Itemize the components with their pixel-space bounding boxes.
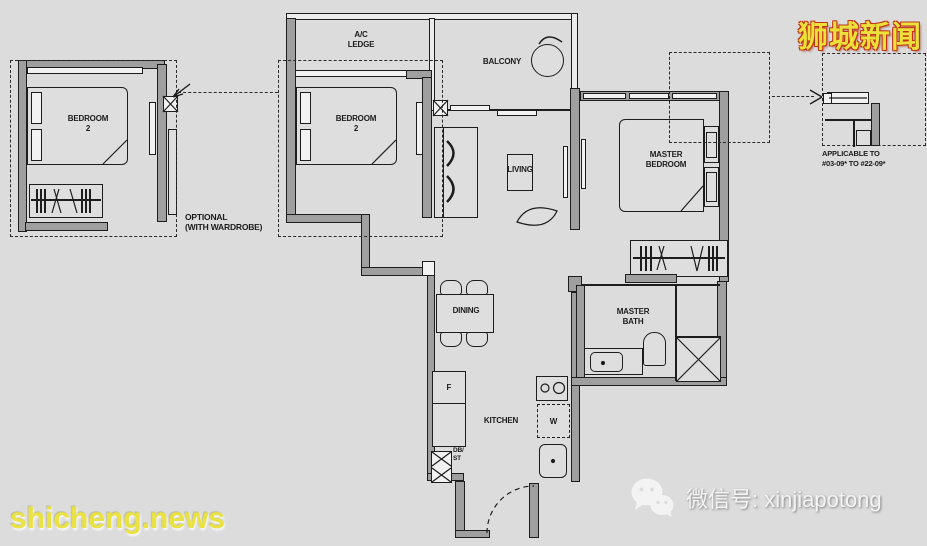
window-panel [581,139,586,189]
wechat-id-text: 微信号: xinjiapotong [686,482,882,514]
room-label-dining: DINING [436,306,496,316]
room-label-master-bath: MASTER BATH [597,307,669,327]
kitchen-sink [539,444,567,478]
dashed-connector [772,96,814,98]
room-label-bedroom2-optional: BEDROOM 2 [53,114,123,134]
detail-window [827,92,869,104]
floor-plan-page: A/C LEDGE BALCONY BEDROOM 2 BEDROOM 2 MA… [0,0,927,546]
detail-line-v [853,119,855,147]
dining-chair [440,280,462,295]
optional-note: OPTIONAL (WITH WARDROBE) [185,212,295,232]
shower [676,337,721,382]
floor-plan [0,0,927,546]
dashed-connector [178,92,278,94]
door-pivot-square [422,261,435,276]
watermark-site-url: shicheng.news [10,502,225,536]
toilet [643,332,666,366]
room-label-master-bedroom: MASTER BEDROOM [630,150,702,170]
detail-rect [856,130,871,146]
wall-balcony-right [571,13,578,92]
dining-chair [466,332,488,347]
cabinet [432,403,466,447]
dining-chair [440,332,462,347]
washer-label: W [537,404,570,438]
room-label-kitchen: KITCHEN [466,416,536,426]
wardrobe [630,240,728,277]
sofa-back-line [443,128,444,217]
watermark-wechat: 微信号: xinjiapotong [630,477,882,519]
side-table-inner [706,172,717,202]
stove [536,376,568,401]
room-label-bedroom2: BEDROOM 2 [321,114,391,134]
dashed-box-bedroom2 [278,60,443,237]
detail-wall [871,103,880,146]
room-label-living: LIVING [490,165,550,175]
window-panel [563,146,568,198]
fridge-label: F [432,371,466,404]
dashed-box-master [669,52,770,143]
wall-living-divider [570,88,580,230]
slider-panel [450,105,490,111]
slider-panel [497,110,537,116]
line-bath-top [581,284,720,286]
wall-entry-bottom [455,530,490,538]
dbst-box [431,451,452,483]
detail-line-h [825,119,871,121]
room-label-ac-ledge: A/C LEDGE [321,30,401,50]
window-master [583,93,626,99]
dashed-box-optional [10,60,177,237]
wardrobe-bar [625,274,677,283]
vanity-sink [590,352,623,372]
applicable-note: APPLICABLE TO #03-09* TO #22-09* [822,149,927,169]
wechat-icon [630,477,676,519]
watermark-brand-cn: 狮城新闻 [798,12,922,56]
dining-chair [466,280,488,295]
room-label-balcony: BALCONY [467,57,537,67]
dbst-label: DB/ ST [453,447,477,463]
wall-entry-right [529,483,539,538]
window-master [629,93,669,99]
detail-window-cap [823,93,832,104]
